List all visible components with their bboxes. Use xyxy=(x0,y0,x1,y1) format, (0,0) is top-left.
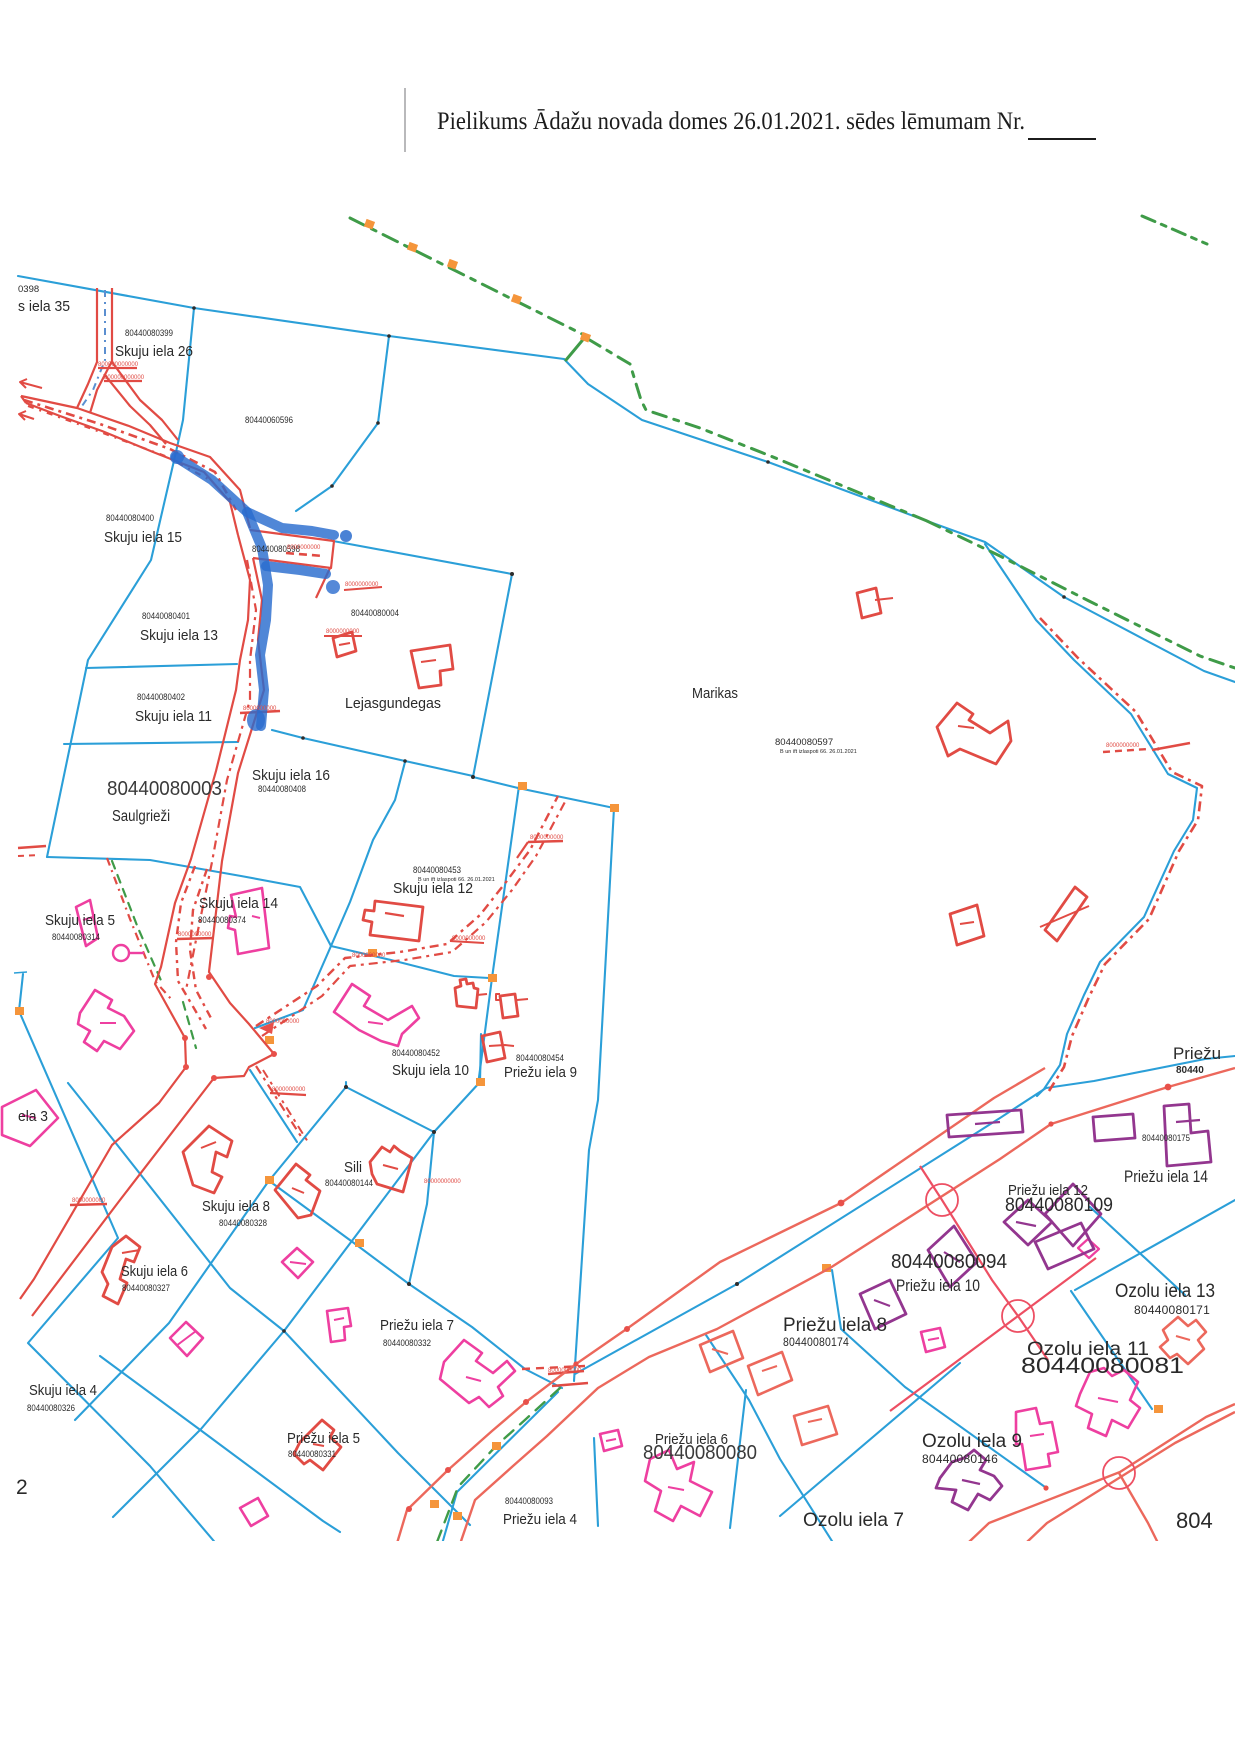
svg-text:80440080454: 80440080454 xyxy=(516,1053,564,1064)
svg-text:8000000000: 8000000000 xyxy=(452,936,486,942)
svg-text:80440080408: 80440080408 xyxy=(258,784,306,795)
svg-text:80440080094: 80440080094 xyxy=(891,1251,1007,1273)
svg-text:80440080400: 80440080400 xyxy=(106,513,154,524)
svg-text:80440080402: 80440080402 xyxy=(137,692,185,703)
svg-text:Priežu iela 7: Priežu iela 7 xyxy=(380,1317,454,1334)
svg-text:80440080332: 80440080332 xyxy=(383,1338,431,1349)
svg-text:8000000000: 8000000000 xyxy=(266,1019,300,1025)
svg-text:Skuju iela 11: Skuju iela 11 xyxy=(135,708,212,725)
svg-text:80000000000: 80000000000 xyxy=(424,1179,461,1185)
svg-text:Lejasgundegas: Lejasgundegas xyxy=(345,695,441,712)
svg-text:80440060596: 80440060596 xyxy=(245,415,293,426)
svg-text:Skuju iela 14: Skuju iela 14 xyxy=(199,895,278,912)
svg-text:Skuju iela 15: Skuju iela 15 xyxy=(104,529,182,546)
svg-text:Ozolu iela 7: Ozolu iela 7 xyxy=(803,1510,904,1531)
svg-text:80440080327: 80440080327 xyxy=(122,1283,170,1294)
svg-text:Sili: Sili xyxy=(344,1159,362,1176)
svg-text:80440080399: 80440080399 xyxy=(125,328,173,339)
svg-text:Priežu iela 10: Priežu iela 10 xyxy=(896,1276,980,1295)
svg-text:ela 3: ela 3 xyxy=(18,1108,48,1125)
svg-text:8000000000: 8000000000 xyxy=(326,629,360,635)
svg-text:8000000000: 8000000000 xyxy=(548,1368,582,1374)
svg-text:Ozolu iela 9: Ozolu iela 9 xyxy=(922,1431,1022,1452)
svg-text:8000000000: 8000000000 xyxy=(530,835,564,841)
svg-text:80440080328: 80440080328 xyxy=(219,1218,267,1229)
svg-text:Skuju iela 16: Skuju iela 16 xyxy=(252,767,330,784)
svg-text:Priežu iela 4: Priežu iela 4 xyxy=(503,1511,577,1528)
svg-text:0398: 0398 xyxy=(18,284,39,295)
svg-text:8000000000: 8000000000 xyxy=(243,706,277,712)
svg-text:Priežu: Priežu xyxy=(1173,1044,1221,1063)
svg-text:Saulgrieži: Saulgrieži xyxy=(112,808,170,825)
svg-text:8000000000: 8000000000 xyxy=(72,1198,106,1204)
svg-text:80440080314: 80440080314 xyxy=(52,932,100,943)
svg-text:80440080080: 80440080080 xyxy=(643,1442,757,1464)
svg-text:80440080171: 80440080171 xyxy=(1134,1303,1210,1317)
svg-text:Skuju iela 10: Skuju iela 10 xyxy=(392,1062,469,1079)
svg-text:8000000000: 8000000000 xyxy=(272,1087,306,1093)
svg-text:8000000000: 8000000000 xyxy=(287,545,321,551)
svg-text:800000000000: 800000000000 xyxy=(104,375,145,381)
svg-text:80440080597: 80440080597 xyxy=(775,737,833,748)
svg-text:Skuju iela 5: Skuju iela 5 xyxy=(45,912,115,929)
svg-text:Priežu iela 9: Priežu iela 9 xyxy=(504,1064,577,1081)
svg-text:80440080081: 80440080081 xyxy=(1021,1353,1184,1378)
svg-text:80440080109: 80440080109 xyxy=(1005,1195,1113,1216)
svg-text:Skuju iela 12: Skuju iela 12 xyxy=(393,880,473,897)
svg-text:Priežu iela 14: Priežu iela 14 xyxy=(1124,1167,1208,1186)
svg-text:80440080003: 80440080003 xyxy=(107,778,222,800)
svg-text:Skuju iela 26: Skuju iela 26 xyxy=(115,343,193,360)
svg-text:80440080401: 80440080401 xyxy=(142,611,190,622)
svg-text:80440080452: 80440080452 xyxy=(392,1048,440,1059)
svg-text:Ozolu iela 13: Ozolu iela 13 xyxy=(1115,1281,1215,1302)
svg-text:80440080144: 80440080144 xyxy=(325,1178,373,1189)
svg-text:8000000000: 8000000000 xyxy=(345,582,379,588)
svg-text:Marikas: Marikas xyxy=(692,685,738,702)
svg-text:s iela 35: s iela 35 xyxy=(18,298,70,315)
svg-text:Skuju iela 6: Skuju iela 6 xyxy=(121,1263,188,1280)
svg-text:2: 2 xyxy=(16,1476,28,1499)
svg-text:80440080093: 80440080093 xyxy=(505,1496,553,1507)
svg-text:80440: 80440 xyxy=(1176,1065,1204,1076)
svg-text:80440080453: 80440080453 xyxy=(413,865,461,876)
svg-text:8000000000: 8000000000 xyxy=(1106,743,1140,749)
svg-text:Priežu iela 5: Priežu iela 5 xyxy=(287,1430,360,1447)
svg-text:80440080374: 80440080374 xyxy=(198,915,246,926)
svg-text:804: 804 xyxy=(1176,1508,1213,1533)
svg-text:Skuju iela 8: Skuju iela 8 xyxy=(202,1198,270,1215)
svg-text:Priežu iela 8: Priežu iela 8 xyxy=(783,1315,887,1336)
svg-text:800000000000: 800000000000 xyxy=(98,362,139,368)
svg-text:Skuju iela 13: Skuju iela 13 xyxy=(140,627,218,644)
svg-text:80440080004: 80440080004 xyxy=(351,608,399,619)
svg-text:80440080174: 80440080174 xyxy=(783,1335,849,1349)
svg-text:80440080146: 80440080146 xyxy=(922,1452,998,1466)
svg-text:80440080175: 80440080175 xyxy=(1142,1133,1190,1144)
svg-text:80440080331: 80440080331 xyxy=(288,1449,336,1460)
svg-text:8000000000: 8000000000 xyxy=(352,953,386,959)
svg-text:B un ift izlaspoti 66. 26.01.2: B un ift izlaspoti 66. 26.01.2021 xyxy=(780,749,857,755)
svg-text:80440080326: 80440080326 xyxy=(27,1403,75,1414)
svg-text:Skuju iela 4: Skuju iela 4 xyxy=(29,1382,97,1399)
svg-text:Pielikums Ādažu novada domes 2: Pielikums Ādažu novada domes 26.01.2021.… xyxy=(437,108,1025,135)
svg-text:8000000000: 8000000000 xyxy=(178,932,212,938)
